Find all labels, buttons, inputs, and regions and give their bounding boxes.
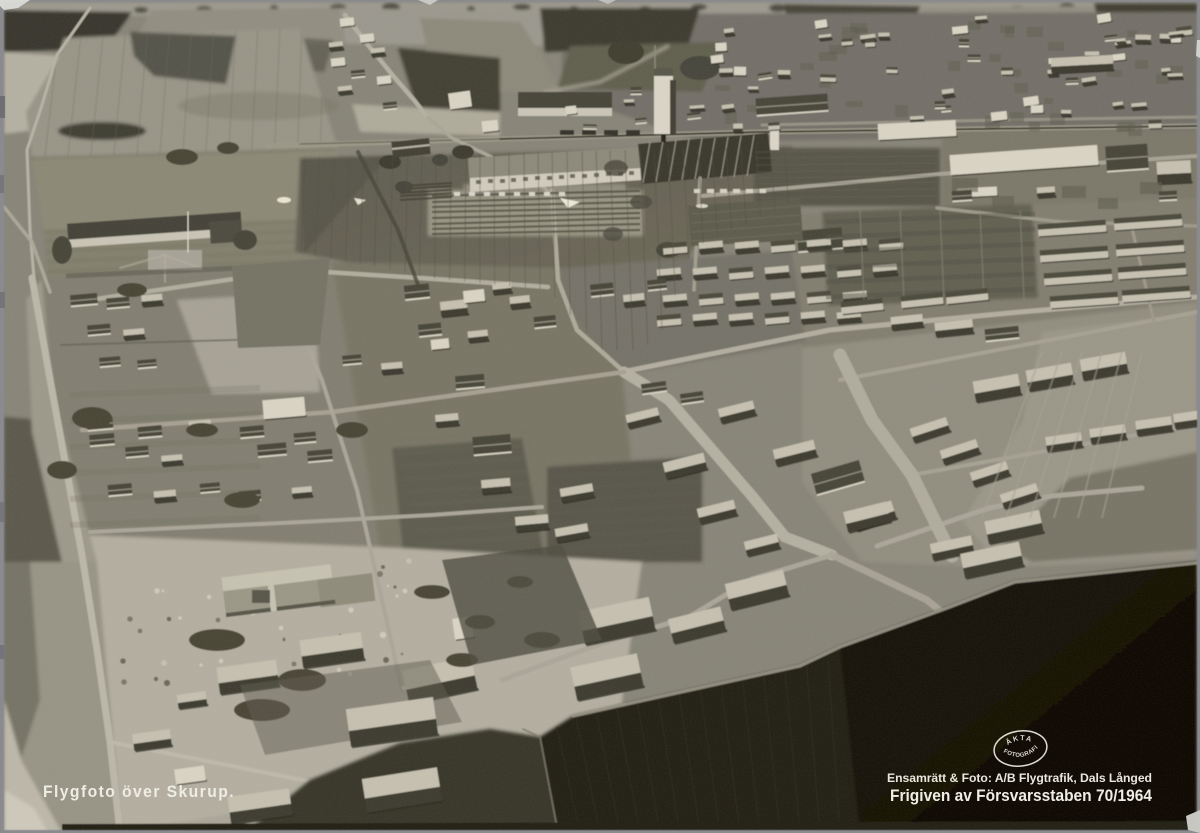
svg-text:Flygfoto över Skurup.: Flygfoto över Skurup. [43, 783, 235, 801]
svg-text:Ensamrätt & Foto: A/B Flygtraf: Ensamrätt & Foto: A/B Flygtrafik, Dals L… [887, 771, 1152, 785]
svg-text:Frigiven av Försvarsstaben 70/: Frigiven av Försvarsstaben 70/1964 [890, 787, 1153, 805]
